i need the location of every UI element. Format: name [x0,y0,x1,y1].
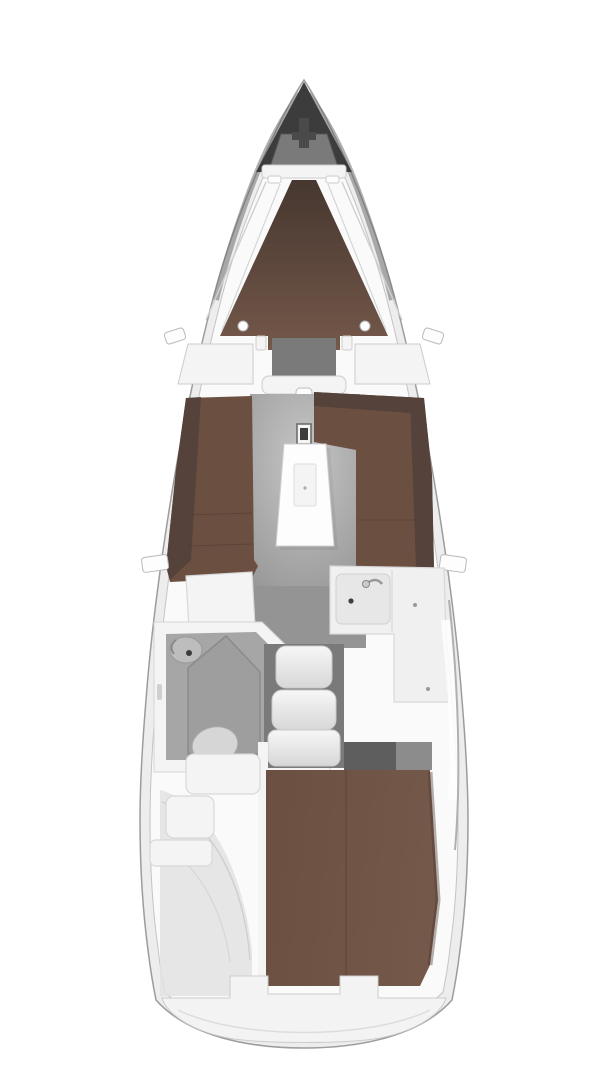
galley-faucet-base [363,581,370,588]
head-door-handle [157,684,162,700]
bow-beam-tab-port [268,176,281,183]
door-post-port [256,336,266,350]
galley-fitting-2 [426,687,430,691]
table-leaf [294,464,316,506]
galley-fitting-1 [413,603,417,607]
hatch-hinge-port [238,321,248,331]
door-post-starboard [342,336,352,350]
companionway-step-2 [272,690,336,730]
table-leaf-latch [303,486,306,489]
basin-drain [186,650,192,656]
chainplate-starboard-fwd [422,327,445,345]
fwd-locker-starboard [355,344,430,384]
chainplate-port-fwd [164,327,187,345]
companionway-step-1 [276,646,332,688]
galley-knob [348,598,353,603]
aft-entrance-floor [344,742,396,770]
fwd-locker-port [178,344,253,384]
chainplate-port-aft [141,554,169,572]
floorplan-canvas [0,0,608,1080]
companionway-step-3 [268,730,340,766]
boat-floorplan [0,0,608,1080]
hatch-hinge-starboard [360,321,370,331]
aft-cabin-berth [266,770,438,986]
stern-locker-step-1 [186,754,260,794]
stern-locker-step-3 [150,840,212,866]
windlass-crossbar [292,132,316,140]
mast-post-core [300,428,308,440]
stern-locker-step-2 [166,796,214,838]
aft-shelf [396,742,432,770]
bow-beam-tab-starboard [326,176,339,183]
